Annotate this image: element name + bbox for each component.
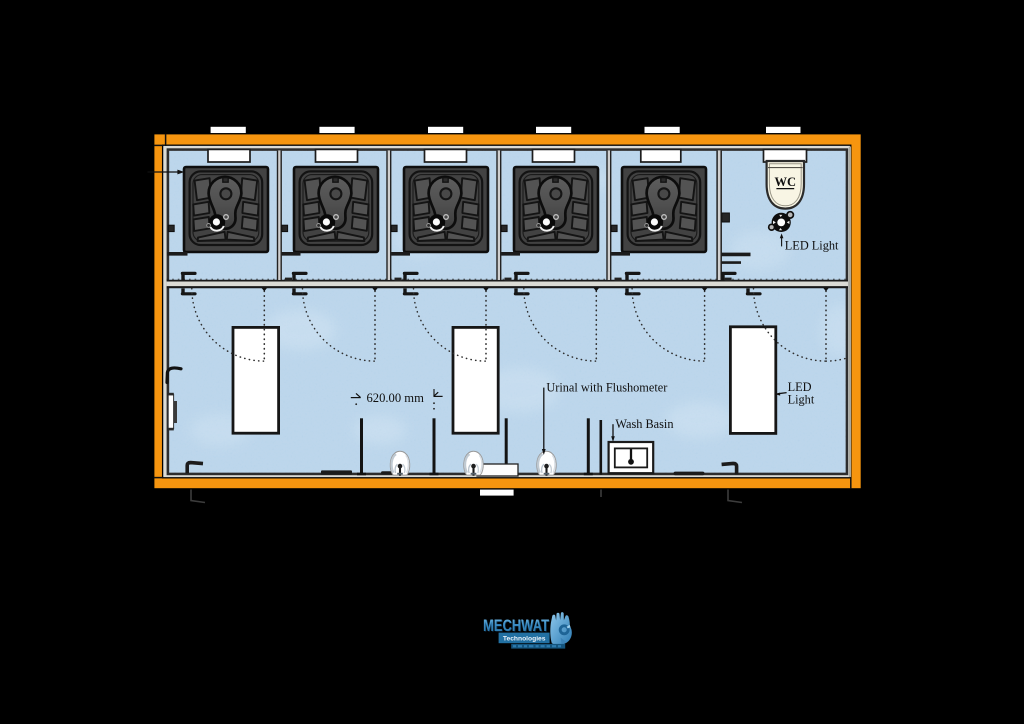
svg-text:MECHWAT: MECHWAT (483, 616, 549, 635)
svg-text:LED Light: LED Light (785, 239, 839, 253)
svg-text:Wash Basin: Wash Basin (615, 417, 673, 431)
svg-text:Technologies: Technologies (503, 635, 546, 642)
svg-text:WC: WC (775, 175, 797, 189)
svg-text:Urinal with Flushometer: Urinal with Flushometer (546, 381, 667, 395)
svg-text:Light: Light (788, 392, 815, 406)
svg-text:620.00 mm: 620.00 mm (367, 391, 425, 405)
